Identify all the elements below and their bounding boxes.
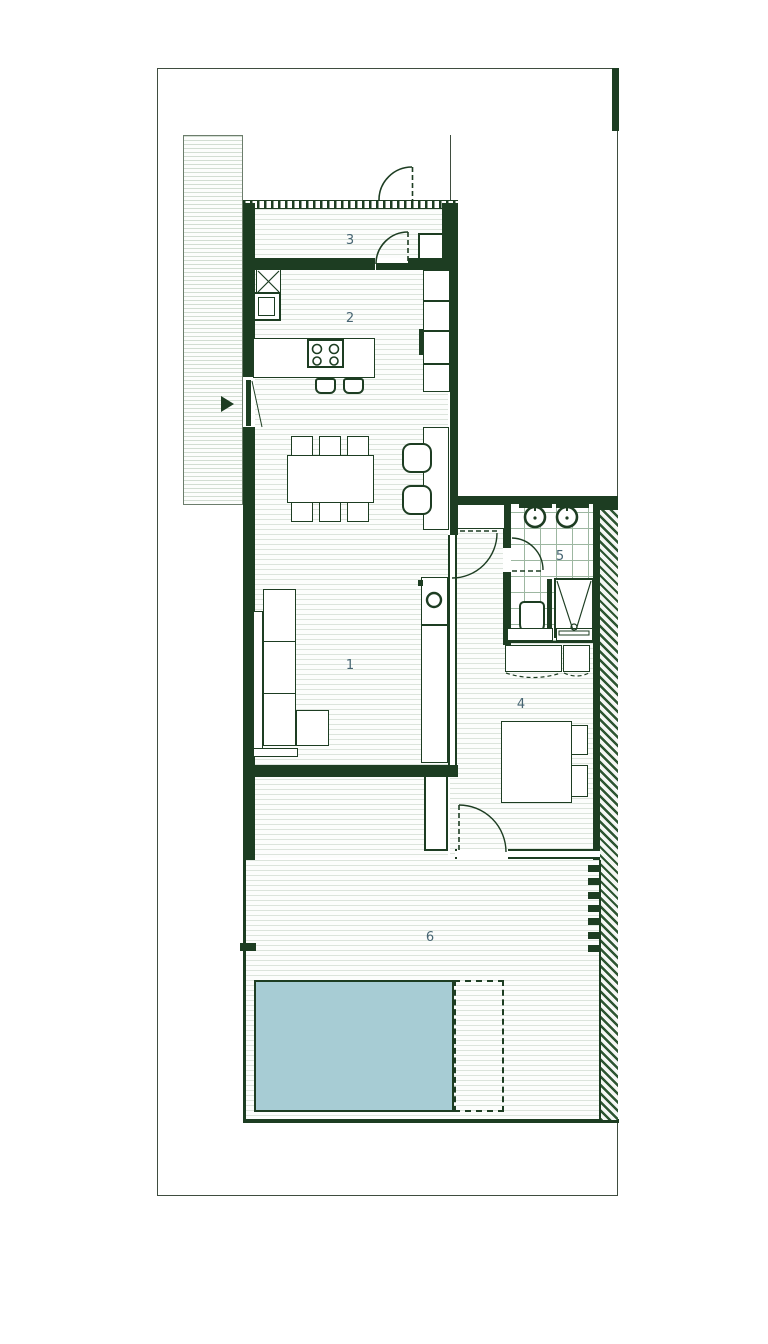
hall-door-arc (452, 533, 497, 578)
hob-burner (330, 357, 338, 365)
hob-burner (330, 345, 339, 354)
wardrobe-swing (564, 673, 589, 676)
washbasin-drain (565, 516, 568, 519)
bedroom-door-arc (459, 805, 506, 852)
annotations-overlay (0, 0, 768, 1344)
shower-glass-line (557, 581, 573, 630)
shower-glass-line (576, 581, 591, 630)
bathroom-door-arc (512, 538, 543, 570)
fireplace-flue (427, 593, 441, 607)
room-label-kitchen: 2 (341, 311, 359, 326)
hob-burner (313, 357, 321, 365)
side-door-swing (252, 381, 262, 427)
wardrobe-swing (506, 673, 561, 678)
gate-swing-arc (379, 167, 412, 200)
room-label-bedroom: 4 (512, 697, 530, 712)
shower-tray-edge (559, 631, 589, 635)
room-label-bathroom: 5 (551, 549, 569, 564)
hob-burner (313, 345, 322, 354)
floor-plan-canvas: 1 2 3 4 5 6 (0, 0, 768, 1344)
entrance-arrow-icon (221, 396, 234, 412)
entry-door-arc (376, 232, 408, 264)
boiler-cross (258, 271, 279, 292)
room-label-entry: 3 (341, 233, 359, 248)
room-label-terrace: 6 (421, 930, 439, 945)
washbasin-drain (533, 516, 536, 519)
room-label-living: 1 (341, 658, 359, 673)
